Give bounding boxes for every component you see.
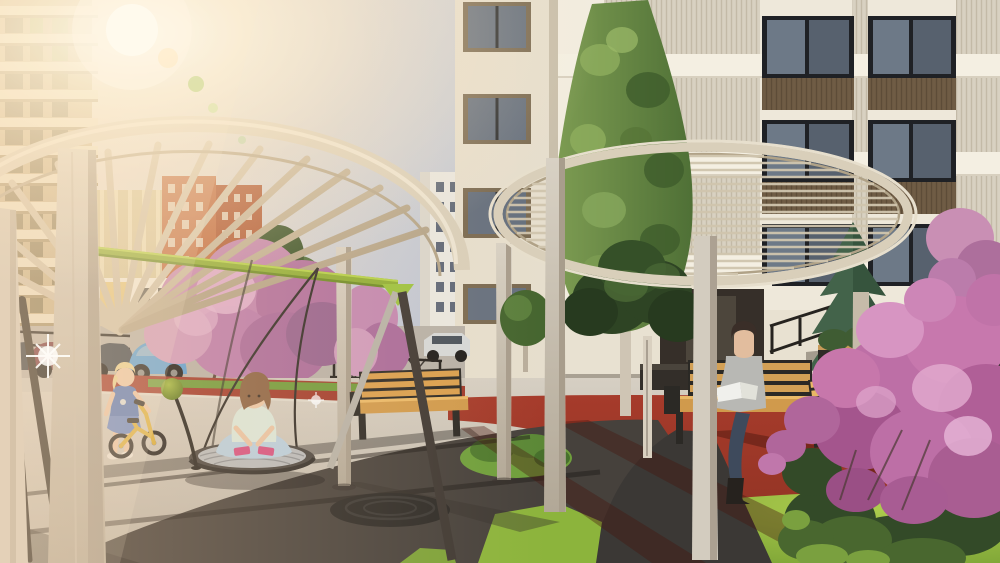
sun-flare <box>0 0 1000 563</box>
scene-canvas <box>0 0 1000 563</box>
courtyard-rendering <box>0 0 1000 563</box>
flare-dot-4 <box>238 136 246 144</box>
